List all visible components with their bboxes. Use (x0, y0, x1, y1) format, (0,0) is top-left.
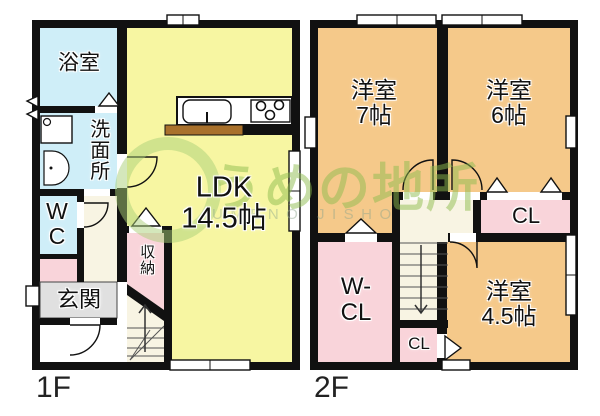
washroom-label: 洗面所 (86, 119, 108, 182)
bath-label: 浴室 (58, 53, 100, 76)
wall (473, 200, 481, 233)
wall (437, 28, 448, 192)
wall (392, 200, 400, 362)
west-room-7-label: 洋室 7帖 (351, 78, 397, 128)
wall (40, 254, 77, 259)
window (26, 286, 39, 306)
wc-label: W C (46, 199, 68, 249)
storage-label: 収納 (138, 244, 154, 276)
counter-wall (243, 125, 292, 135)
hallway-2f (400, 200, 473, 233)
wall (117, 20, 127, 282)
washing-machine (41, 116, 72, 143)
west-room-45-label: 洋室 4.5帖 (482, 279, 537, 329)
window (566, 116, 576, 148)
kitchen-counter (165, 97, 292, 135)
walkin-closet-label: W- CL (341, 274, 372, 326)
floor-plan-image: うめの地所 UMENO JISHO 浴室 洗面所 W C 玄関 収納 LDK 1… (0, 0, 600, 416)
floor1-tag: 1F (36, 372, 71, 404)
floor2-tag: 2F (314, 372, 349, 404)
wall (164, 226, 172, 362)
counter-edge (165, 125, 243, 135)
wc-closet (40, 259, 77, 282)
ldk-label: LDK 14.5帖 (181, 173, 266, 236)
window (305, 117, 316, 148)
closet-small-label: CL (408, 335, 430, 353)
entrance-label: 玄関 (57, 288, 101, 312)
hallway-1f (84, 196, 117, 282)
closet-right-label: CL (512, 204, 540, 228)
west-room-6-label: 洋室 6帖 (486, 78, 532, 128)
window (442, 360, 470, 370)
